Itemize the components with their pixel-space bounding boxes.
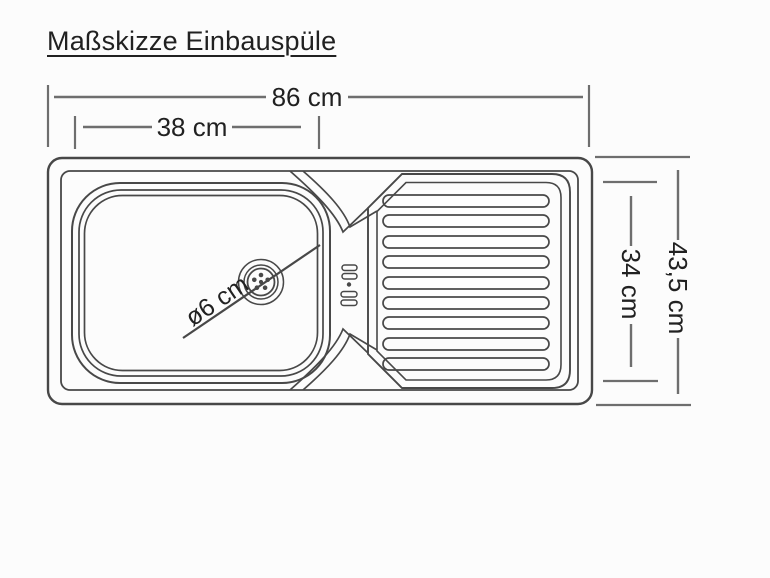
drainboard-rib bbox=[383, 358, 549, 370]
transition-curve-bottom-inner bbox=[303, 334, 377, 390]
drainboard-rib bbox=[383, 256, 549, 268]
inner-depth-label: 34 cm bbox=[616, 249, 646, 320]
overflow-slot bbox=[342, 265, 357, 271]
drainboard-rib bbox=[383, 195, 549, 207]
basin-outline-middle bbox=[79, 190, 323, 376]
total-depth-label: 43,5 cm bbox=[663, 242, 693, 335]
drainboard-rib bbox=[383, 236, 549, 248]
total-width-label: 86 cm bbox=[272, 82, 343, 112]
drainboard bbox=[368, 174, 570, 388]
drainboard-ribs bbox=[383, 195, 549, 370]
strainer-hole bbox=[252, 278, 257, 283]
basin-outline-outer bbox=[72, 183, 330, 383]
drainboard-rib bbox=[383, 277, 549, 289]
drainboard-outline-outer bbox=[368, 174, 570, 388]
drain-diameter-callout: ø6 cm bbox=[180, 245, 320, 338]
basin-outline-inner bbox=[85, 196, 318, 371]
overflow-slot bbox=[341, 292, 357, 298]
overflow-dot bbox=[347, 282, 351, 286]
measure-sketch-page: Maßskizze Einbauspüle 86 cm 38 cm 43,5 c… bbox=[0, 0, 770, 578]
basin bbox=[72, 183, 330, 383]
strainer-hole bbox=[259, 273, 264, 278]
drainboard-rib bbox=[383, 338, 549, 350]
basin-width-label: 38 cm bbox=[157, 112, 228, 142]
drainboard-rib bbox=[383, 297, 549, 309]
drain-diameter-label: ø6 cm bbox=[180, 270, 253, 332]
overflow-slot bbox=[341, 300, 357, 306]
drainboard-rib bbox=[383, 215, 549, 227]
sink-dimension-drawing: 86 cm 38 cm 43,5 cm 34 cm bbox=[0, 0, 770, 578]
dimension-basin-width: 38 cm bbox=[75, 112, 319, 149]
drainboard-rib bbox=[383, 317, 549, 329]
dimension-inner-depth: 34 cm bbox=[603, 182, 658, 381]
strainer-hole bbox=[263, 285, 268, 290]
overflow-slots bbox=[341, 265, 357, 306]
overflow-slot bbox=[342, 274, 357, 280]
